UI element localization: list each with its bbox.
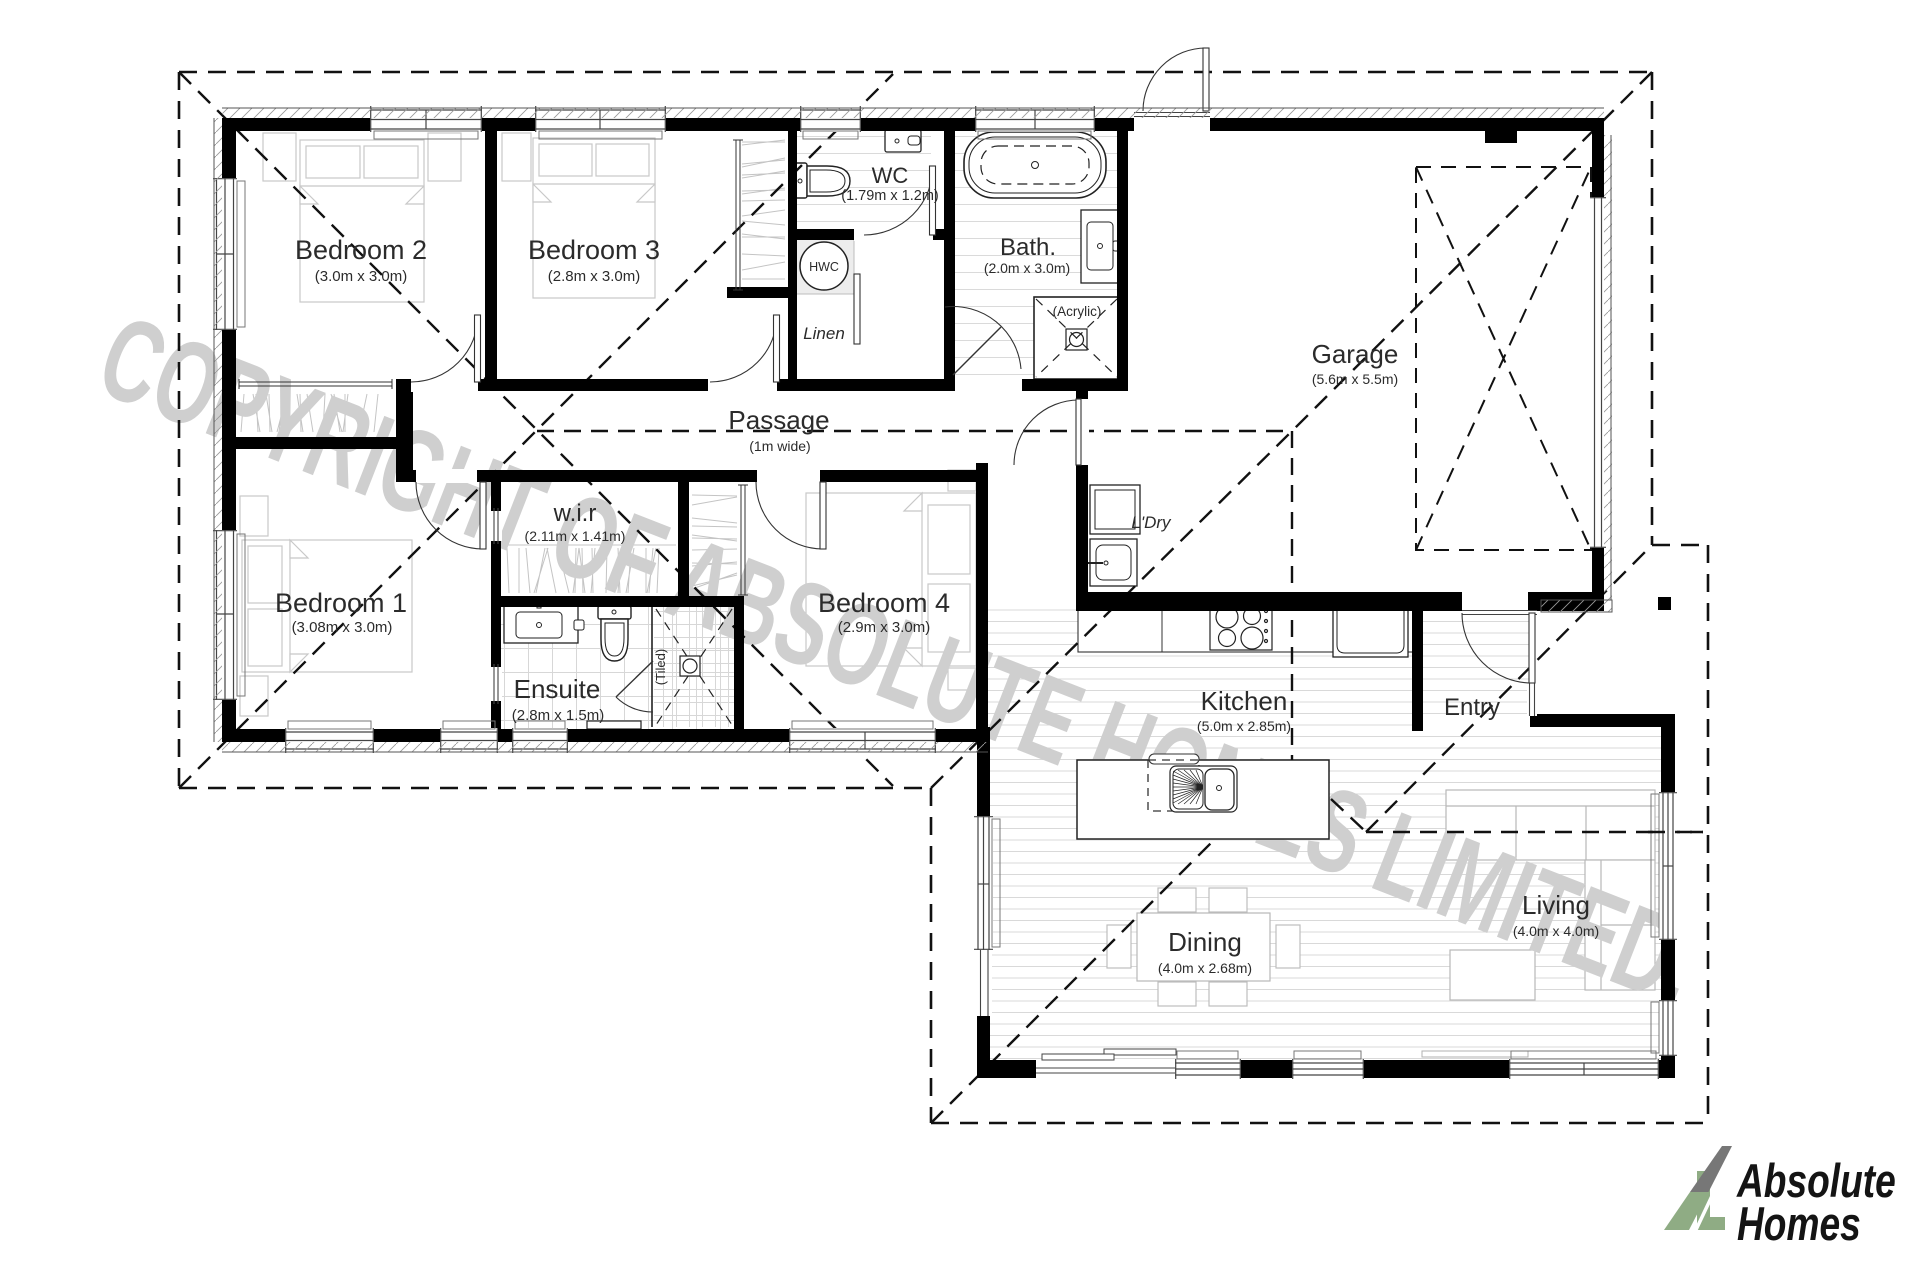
svg-text:HWC: HWC (809, 260, 839, 274)
svg-text:Ensuite: Ensuite (514, 674, 601, 704)
svg-text:(4.0m x 2.68m): (4.0m x 2.68m) (1158, 960, 1252, 976)
svg-text:(2.8m x 3.0m): (2.8m x 3.0m) (548, 268, 641, 285)
svg-text:(3.0m x 3.0m): (3.0m x 3.0m) (315, 268, 408, 285)
svg-text:(1m wide): (1m wide) (749, 438, 810, 454)
svg-text:Homes: Homes (1737, 1198, 1861, 1250)
svg-text:Dining: Dining (1168, 927, 1242, 957)
svg-text:Bedroom 1: Bedroom 1 (275, 588, 407, 618)
svg-text:(3.08m x 3.0m): (3.08m x 3.0m) (292, 619, 393, 636)
svg-text:(2.0m x 3.0m): (2.0m x 3.0m) (984, 260, 1070, 276)
svg-text:Entry: Entry (1444, 694, 1500, 721)
svg-text:(Tiled): (Tiled) (653, 649, 668, 685)
svg-text:WC: WC (872, 163, 909, 188)
svg-text:(4.0m x 4.0m): (4.0m x 4.0m) (1513, 923, 1599, 939)
svg-text:Bedroom 2: Bedroom 2 (295, 235, 427, 265)
svg-text:Living: Living (1522, 890, 1590, 920)
svg-text:w.i.r: w.i.r (553, 500, 597, 527)
svg-text:(2.11m x 1.41m): (2.11m x 1.41m) (525, 528, 626, 544)
svg-text:(1.79m x 1.2m): (1.79m x 1.2m) (841, 188, 939, 204)
svg-text:(Acrylic): (Acrylic) (1053, 304, 1102, 319)
svg-text:Bedroom 4: Bedroom 4 (818, 588, 950, 618)
svg-text:Bath.: Bath. (1000, 234, 1056, 261)
svg-text:Kitchen: Kitchen (1201, 686, 1288, 716)
svg-text:(2.9m x 3.0m): (2.9m x 3.0m) (838, 619, 931, 636)
svg-text:Garage: Garage (1312, 339, 1399, 369)
svg-text:(2.8m x 1.5m): (2.8m x 1.5m) (512, 707, 605, 724)
svg-text:Bedroom 3: Bedroom 3 (528, 235, 660, 265)
svg-text:(5.6m x 5.5m): (5.6m x 5.5m) (1312, 371, 1398, 387)
svg-text:L'Dry: L'Dry (1131, 513, 1172, 532)
svg-text:Linen: Linen (803, 324, 845, 343)
svg-text:(5.0m x 2.85m): (5.0m x 2.85m) (1197, 718, 1291, 734)
svg-text:Passage: Passage (728, 405, 829, 435)
